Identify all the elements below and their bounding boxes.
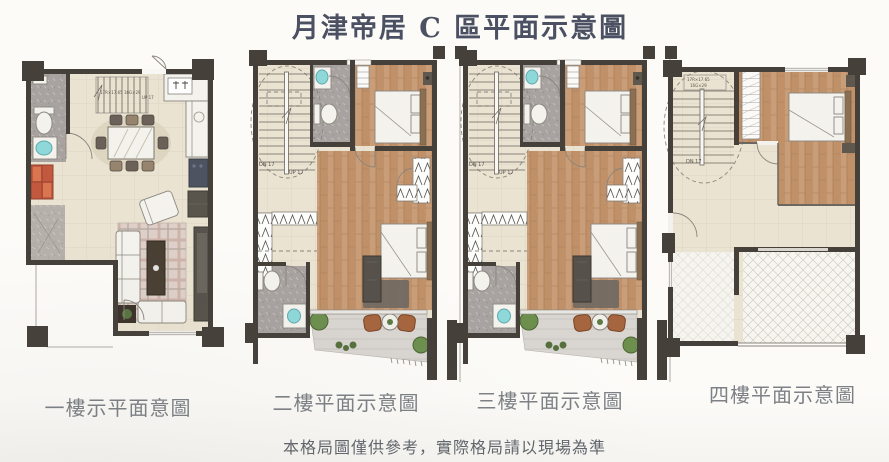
floor-1-plan: 17R×17.65 16G×29 UP 17 [14, 55, 234, 355]
stair-note-1: 17R×17.65 [687, 77, 710, 82]
headboard [845, 91, 851, 143]
floor-3-caption: 三樓平面示意圖 [440, 385, 660, 414]
terrace-parapet [738, 343, 860, 346]
dining-chair [110, 161, 122, 171]
floor-4-plan: 17R×17.65 16G×29 DN 17 [658, 55, 880, 373]
pillar [848, 58, 866, 75]
pillar [662, 338, 680, 357]
stair-note: 17R×17.65 16G×29 [100, 90, 141, 95]
window [785, 67, 828, 72]
dining-chair [110, 115, 122, 125]
door-opening [757, 141, 778, 145]
pillar [846, 335, 865, 354]
floor-2-plan [243, 44, 467, 388]
pillow [834, 97, 843, 114]
storage [31, 205, 65, 260]
pillar [192, 59, 214, 80]
dining-chair [126, 115, 138, 125]
pillar [22, 61, 44, 81]
closet-shelves [742, 71, 760, 139]
pillar [662, 233, 675, 253]
dining-chair [96, 137, 106, 149]
stair-down-label: DN 17 [686, 159, 702, 165]
sliding-door [758, 248, 828, 251]
stair-up-label: UP 17 [142, 95, 154, 100]
stair-note-2: 16G×29 [690, 83, 707, 88]
toilet-icon [36, 112, 52, 134]
roof-terrace [673, 252, 855, 343]
floor-4-caption: 四樓平面示意圖 [670, 379, 889, 408]
kitchen-label-box [168, 78, 192, 94]
floor-1-caption: 一樓示平面意圖 [8, 392, 228, 421]
sink-icon [36, 141, 52, 155]
stove [189, 159, 208, 187]
entry-opening [142, 69, 166, 74]
nightstand [846, 75, 856, 87]
door-arc [152, 56, 166, 69]
dining-chair [158, 137, 168, 149]
dining-chair [142, 115, 154, 125]
bench [842, 143, 856, 153]
pillar [27, 326, 48, 347]
pillow [834, 117, 843, 134]
window [668, 262, 673, 287]
tv-icon [197, 233, 207, 293]
window [149, 331, 196, 336]
dining-chair [126, 161, 138, 171]
disclaimer-text: 本格局圖僅供參考，實際格局請以現場為準 [0, 434, 889, 458]
floor-2-caption: 二樓平面示意圖 [236, 387, 456, 416]
shoe-cabinet [31, 165, 53, 199]
plant-icon [122, 309, 132, 319]
page-title: 月津帝居 C 區平面示意圖 [160, 6, 760, 46]
kitchen-counter [186, 101, 208, 157]
pillar [202, 327, 224, 347]
sofa [116, 231, 140, 303]
pillar [663, 60, 682, 77]
floor-3-plan [453, 44, 677, 388]
dining-chair [142, 161, 154, 171]
